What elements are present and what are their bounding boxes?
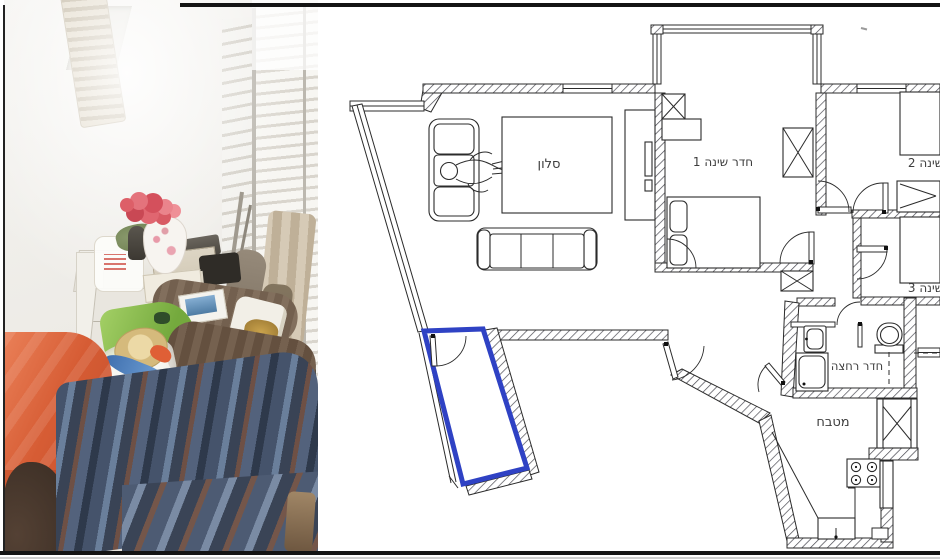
bedroom2-furniture — [897, 92, 940, 212]
plastic-bag-print — [104, 254, 126, 270]
kitchen-wall-notch — [872, 528, 888, 539]
label-bedroom2: חדר שינה 2 — [908, 156, 940, 170]
kitchen-counter-right — [880, 461, 893, 508]
stove — [847, 459, 880, 487]
bedroom1-door — [780, 232, 814, 264]
black-telephone — [199, 252, 242, 286]
label-kitchen: מטבח — [816, 415, 849, 430]
bathroom-door — [837, 302, 862, 347]
wooden-leg — [284, 491, 316, 551]
shower-stall — [796, 353, 828, 391]
screenshot-root: סלון חדר שינה 1 חדר שינה 2 חדר שינה 3 חד… — [0, 0, 940, 560]
living-room-furniture — [429, 110, 655, 270]
label-bedroom3: חדר שינה 3 — [908, 281, 940, 295]
pen-mark — [861, 28, 867, 30]
tv-cabinet — [625, 110, 655, 220]
bedroom1-furniture — [662, 94, 813, 268]
bedroom2-door — [853, 183, 888, 214]
left-border-line — [3, 5, 5, 551]
toilet — [875, 323, 903, 353]
bedroom1-bed — [667, 197, 760, 268]
floor-plan: סלון חדר שינה 1 חדר שינה 2 חדר שינה 3 חד… — [323, 0, 940, 552]
green-bottle — [154, 312, 170, 324]
label-living-room: סלון — [538, 157, 561, 172]
bottom-border-line — [0, 551, 940, 555]
bedroom3-bed — [900, 217, 940, 283]
top-border-line — [180, 3, 940, 7]
rose-bouquet — [120, 198, 134, 212]
label-bathroom: חדר רחצה — [831, 359, 883, 373]
bottom-border-shadow — [0, 557, 940, 559]
room-photo — [4, 0, 318, 551]
kitchen-closet — [877, 399, 917, 448]
label-bedroom1: חדר שינה 1 — [693, 155, 753, 169]
corridor-closet — [781, 271, 813, 291]
bedroom3-door — [857, 246, 888, 279]
bathroom-sink — [804, 326, 826, 352]
kitchen-sink-cabinet — [818, 518, 855, 539]
three-seat-sofa — [477, 228, 597, 270]
